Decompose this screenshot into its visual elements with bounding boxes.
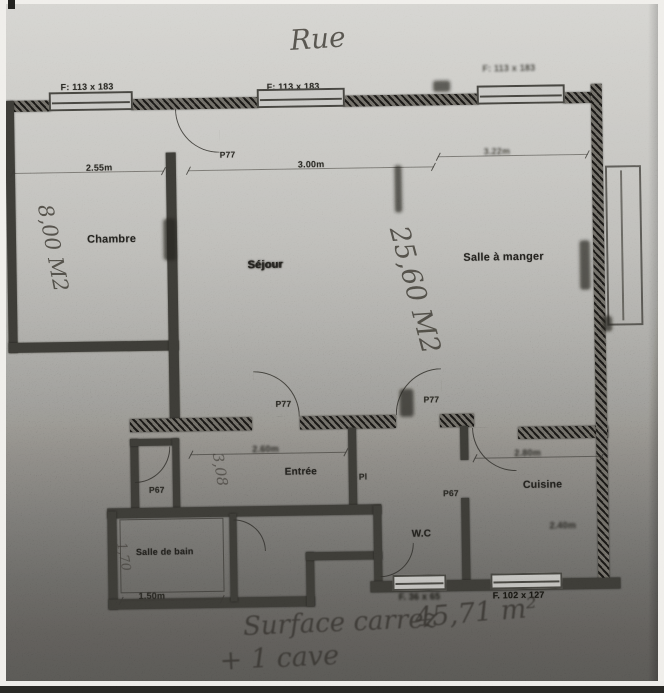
- closet-entree-divider: [172, 438, 180, 510]
- door-label-placard: Pl: [359, 471, 368, 481]
- dim-cuisine: 2.80m: [514, 448, 541, 458]
- door-arc-wc: [380, 543, 415, 578]
- scan-smudge: [579, 240, 591, 290]
- sejour-bottom-wall: [440, 414, 474, 428]
- room-label-wc: W.C: [412, 528, 432, 539]
- room-label-sejour: Séjour: [247, 259, 283, 272]
- street-name-handwriting: Rue: [289, 20, 347, 57]
- entree-bottom-wall: [107, 504, 381, 518]
- window-chambre: [49, 91, 133, 111]
- room-label-salle-a-manger: Salle à manger: [463, 251, 544, 264]
- dim-entree: 2.60m: [252, 444, 279, 454]
- sejour-bottom-wall: [130, 417, 252, 432]
- scan-smudge: [394, 165, 403, 213]
- window-glass-line: [395, 582, 443, 585]
- dim-cuisine-depth: 2.40m: [549, 520, 576, 530]
- dim-salle-a-manger: 3.22m: [484, 146, 511, 156]
- chambre-bottom-wall: [9, 340, 179, 353]
- dim-chambre: 2.55m: [86, 162, 113, 172]
- cave-note-handwriting: + 1 cave: [219, 640, 340, 677]
- door-arc-closet: [134, 447, 171, 484]
- top-wall-segment: [563, 92, 593, 103]
- scan-smudge: [399, 389, 413, 417]
- area-handwriting-chambre: 8,00 M2: [33, 202, 73, 293]
- dim-sejour: 3.00m: [298, 159, 325, 169]
- window-glass-line: [480, 94, 562, 97]
- room-label-cuisine: Cuisine: [523, 478, 563, 491]
- window-glass-line: [493, 580, 559, 583]
- scan-smudge: [602, 316, 612, 332]
- window-glass-line: [52, 101, 130, 104]
- dim-bath: 1.50m: [139, 591, 166, 601]
- cuisine-left-wall-upper: [460, 426, 469, 460]
- door-label-cuisine: P67: [443, 488, 459, 498]
- top-wall-segment: [343, 94, 479, 107]
- window-cuisine: [490, 572, 562, 589]
- window-sejour: [257, 88, 345, 108]
- door-label-chambre: P77: [220, 149, 236, 159]
- scan-smudge: [433, 80, 451, 92]
- left-outer-wall: [6, 101, 18, 353]
- scan-corner-mark: [8, 0, 15, 9]
- balcony-inner-line: [620, 170, 624, 320]
- hall-vertical-wall: [306, 552, 315, 606]
- chambre-sejour-wall: [166, 152, 180, 430]
- entree-right-wall: [348, 428, 357, 510]
- door-arc-cuisine: [472, 427, 517, 472]
- scan-smudge: [163, 218, 177, 260]
- room-label-salle-de-bain: Salle de bain: [136, 546, 194, 557]
- scan-bottom-black-strip: [0, 686, 664, 693]
- room-label-chambre: Chambre: [87, 233, 136, 246]
- closet-top-wall: [130, 438, 178, 446]
- door-arc-bath: [233, 519, 265, 551]
- floor-plan: Rue F: 113 x 183 F: 113 x 183 F: 113 x 1…: [6, 4, 658, 683]
- window-label-top-right: F: 113 x 183: [482, 63, 535, 74]
- door-arc-chambre: [175, 109, 220, 154]
- balcony-door-structure: [605, 165, 644, 326]
- door-label-sejour-left: P77: [276, 399, 292, 409]
- dining-kitchen-wall: [518, 426, 608, 439]
- door-label-closet: P67: [149, 485, 165, 495]
- right-outer-wall: [591, 84, 610, 581]
- room-label-entree: Entrée: [285, 466, 317, 478]
- window-glass-line: [260, 98, 342, 101]
- scan-margin-right: [657, 0, 664, 686]
- door-label-sejour-right: P77: [423, 394, 439, 404]
- surface-note-handwriting: Surface carrez: [243, 604, 438, 642]
- dim-line-salle-a-manger: [438, 154, 588, 157]
- window-wc: [392, 574, 446, 591]
- scanned-paper: Rue F: 113 x 183 F: 113 x 183 F: 113 x 1…: [6, 4, 658, 683]
- wc-cuisine-wall: [461, 498, 470, 588]
- area-handwriting-entree: 3,08: [209, 452, 232, 488]
- door-arc-sejour-left: [253, 370, 300, 417]
- hall-horizontal-wall: [306, 551, 382, 560]
- area-handwriting-sejour: 25,60 M2: [383, 223, 447, 357]
- window-salle-a-manger: [477, 84, 565, 104]
